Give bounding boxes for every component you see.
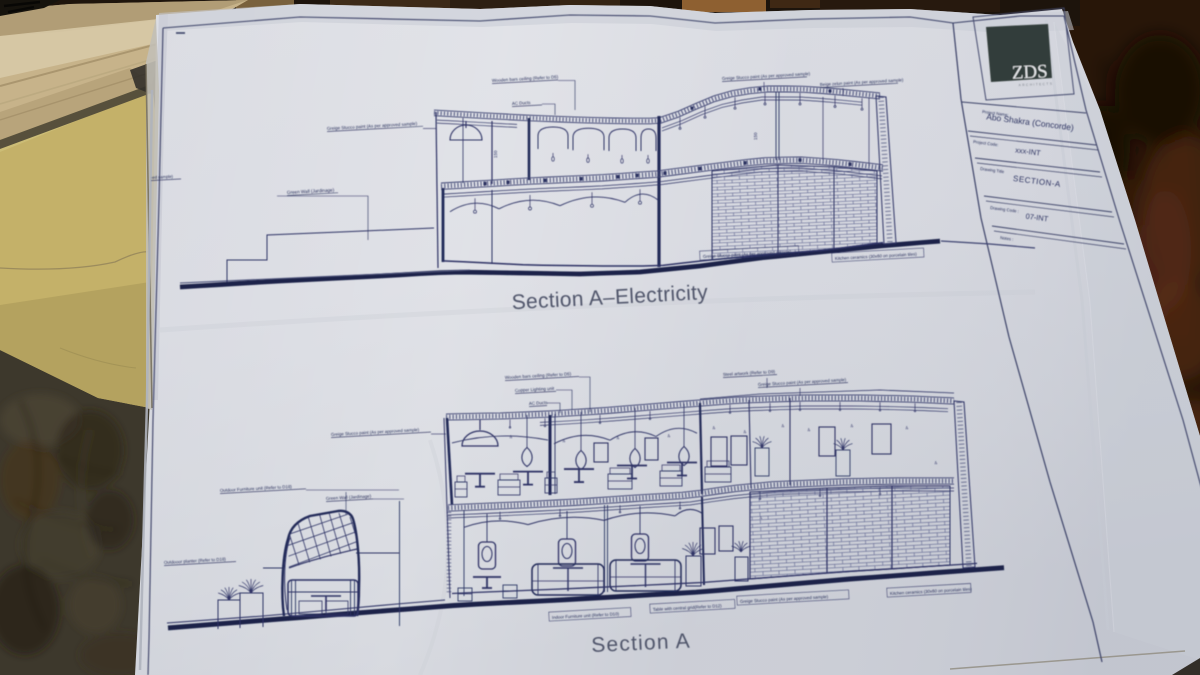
svg-text:150: 150 <box>493 150 498 158</box>
svg-text:150: 150 <box>753 132 758 140</box>
svg-text:ZDS: ZDS <box>1011 61 1048 84</box>
svg-text:Section A: Section A <box>591 630 691 657</box>
